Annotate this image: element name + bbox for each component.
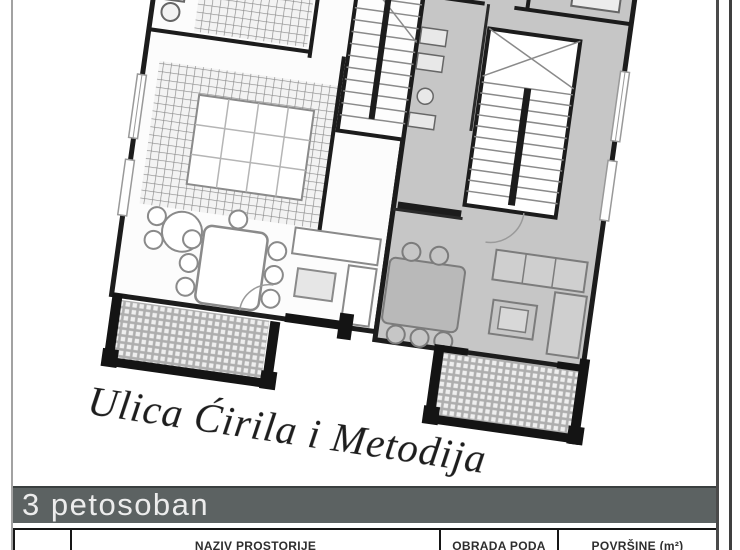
page-border-left [11,0,13,550]
brochure-page: Ulica Ćirila i Metodija 3 petosoban NAZI… [0,0,740,550]
table-header-area: POVRŠINE (m²) [557,530,716,550]
room-spec-table: NAZIV PROSTORIJE OBRADA PODA POVRŠINE (m… [13,528,718,550]
page-border-right-inner [716,0,719,550]
table-header-index [15,530,70,550]
table-header-floor-finish: OBRADA PODA [439,530,557,550]
table-header-room-name: NAZIV PROSTORIJE [70,530,439,550]
page-border-right-outer [729,0,732,550]
unit-title-banner: 3 petosoban [13,486,716,523]
